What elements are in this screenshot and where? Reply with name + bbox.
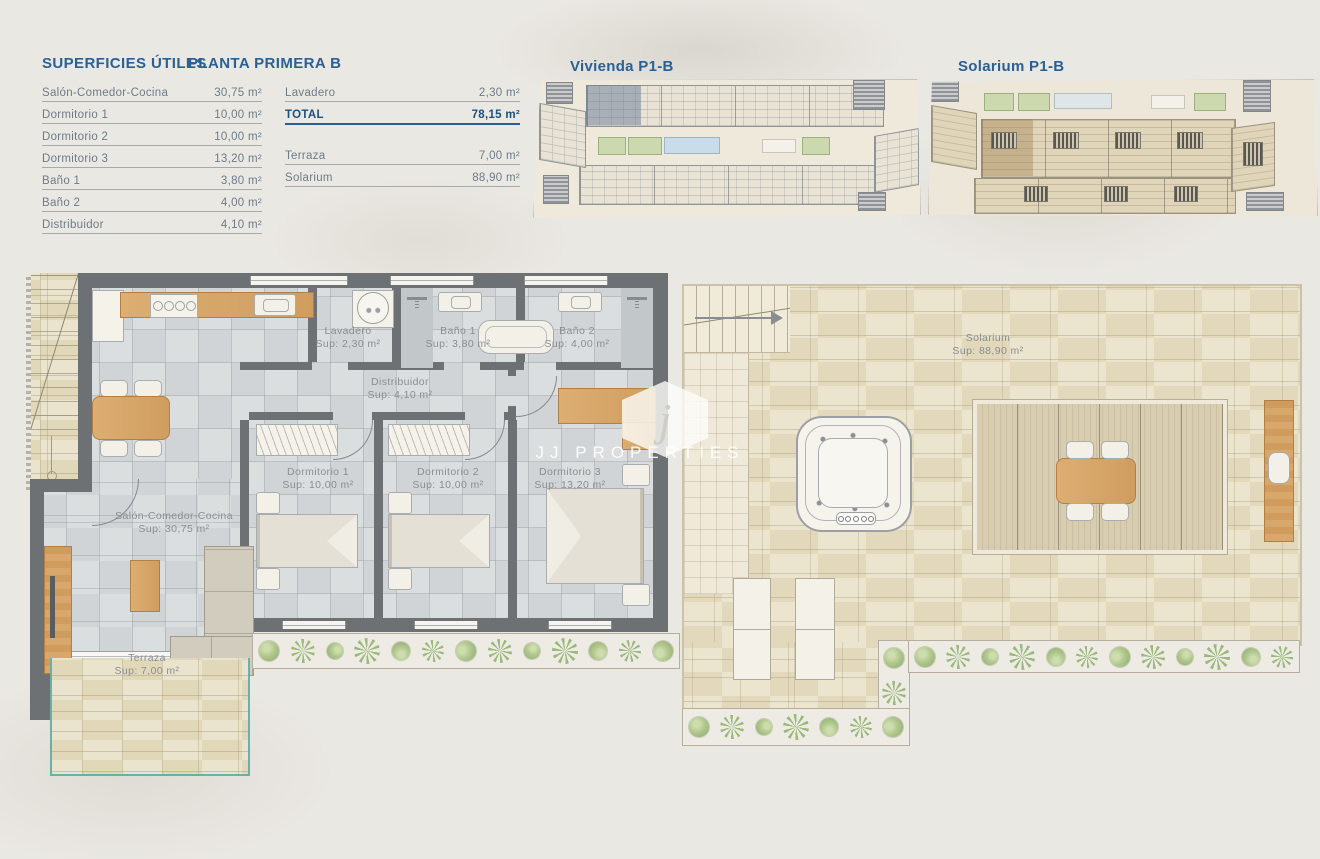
bed-fold: [327, 515, 357, 567]
bush-plant-icon: [1240, 646, 1261, 667]
partition-wall: [372, 412, 465, 420]
room-name: Dormitorio 3: [520, 466, 620, 479]
partition-wall: [480, 362, 516, 370]
room-name: Salón-Comedor-Cocina: [108, 510, 240, 523]
row-value: 78,15 m²: [472, 109, 520, 121]
partition-wall: [504, 412, 516, 420]
room-label-lavadero: LavaderoSup: 2,30 m²: [300, 325, 396, 351]
wardrobe: [388, 424, 470, 456]
room-label-dormitorio1: Dormitorio 1Sup: 10,00 m²: [268, 466, 368, 492]
room-label-solarium: SolariumSup: 88,90 m²: [928, 332, 1048, 358]
stair-pull-line: [51, 436, 52, 474]
surfaces-table-right: Lavadero2,30 m² TOTAL78,15 m² Terraza7,0…: [285, 80, 520, 187]
table-row: Solarium88,90 m²: [285, 165, 520, 187]
roof-vent: [1177, 132, 1203, 149]
vivienda-mini-title: Vivienda P1-B: [570, 58, 674, 75]
mini-terrace-patch: [1151, 95, 1185, 109]
bed-fold: [459, 515, 489, 567]
row-label: Distribuidor: [42, 219, 104, 231]
mini-stairs-hatch: [546, 82, 573, 104]
control-dot: [861, 516, 867, 522]
planter-strip: [682, 708, 910, 746]
chair: [1066, 441, 1094, 459]
room-area: Sup: 4,10 m²: [368, 389, 433, 401]
row-value: 30,75 m²: [214, 87, 262, 99]
mini-pool: [1054, 93, 1112, 109]
palm-plant-icon: [547, 634, 582, 669]
chair: [100, 380, 128, 397]
row-value: 7,00 m²: [479, 150, 520, 162]
roof-vent: [1024, 186, 1048, 202]
palm-plant-icon: [779, 710, 813, 744]
mini-garden: [598, 137, 626, 155]
single-bed: [256, 514, 358, 568]
table-row: Terraza7,00 m²: [285, 143, 520, 165]
row-value: 10,00 m²: [214, 109, 262, 121]
palm-plant-icon: [1267, 641, 1298, 672]
room-name: Terraza: [97, 652, 197, 665]
wall: [30, 479, 44, 662]
chair: [1101, 441, 1129, 459]
mini-stairs-hatch: [543, 175, 569, 204]
palm-plant-icon: [878, 676, 910, 710]
tv-unit: [44, 546, 72, 674]
washing-machine-icon: [357, 292, 389, 324]
sink-basin: [451, 296, 471, 309]
mini-stairs-hatch: [858, 192, 886, 211]
planter-strip: [908, 640, 1300, 673]
room-label-salon: Salón-Comedor-CocinaSup: 30,75 m²: [108, 510, 240, 536]
chair: [1066, 503, 1094, 521]
row-value: 10,00 m²: [214, 131, 262, 143]
palm-plant-icon: [715, 710, 749, 744]
burner-icon: [186, 301, 196, 311]
room-area: Sup: 10,00 m²: [282, 479, 353, 491]
row-label: Dormitorio 1: [42, 109, 108, 121]
partition-wall: [374, 420, 383, 618]
bush-plant-icon: [652, 640, 674, 662]
room-name: Distribuidor: [350, 376, 450, 389]
row-value: 88,90 m²: [472, 172, 520, 184]
chair: [100, 440, 128, 457]
mini-roofs-left-block: [931, 105, 977, 170]
roof-vent: [1053, 132, 1079, 149]
nightstand: [622, 584, 650, 606]
partition-wall: [249, 412, 333, 420]
nightstand: [388, 568, 412, 590]
plan-name-title: PLANTA PRIMERA B: [188, 55, 341, 72]
shower-spray-icon: [635, 300, 639, 308]
bush-plant-icon: [817, 715, 842, 740]
table-row: Baño 13,80 m²: [42, 168, 262, 190]
table-row: Distribuidor4,10 m²: [42, 212, 262, 234]
table-row: Baño 24,00 m²: [42, 190, 262, 212]
solarium-deck-extension: [682, 642, 884, 710]
stair-arrow-line: [695, 317, 771, 319]
row-label: Solarium: [285, 172, 333, 184]
nightstand: [622, 464, 650, 486]
row-value: 4,10 m²: [221, 219, 262, 231]
outdoor-table: [1056, 458, 1136, 504]
row-label: Baño 1: [42, 175, 80, 187]
table-row: Dormitorio 210,00 m²: [42, 124, 262, 146]
room-area: Sup: 2,30 m²: [316, 338, 381, 350]
outdoor-sink: [1268, 452, 1290, 484]
plan-sheet: SUPERFICIES ÚTILES PLANTA PRIMERA B Saló…: [0, 0, 1320, 859]
room-area: Sup: 4,00 m²: [545, 338, 610, 350]
planter-strip: [252, 633, 680, 669]
double-bed: [546, 488, 644, 584]
burner-icon: [164, 301, 174, 311]
palm-plant-icon: [486, 637, 514, 665]
roof-vent: [1174, 186, 1198, 202]
bedroom-window: [548, 621, 612, 629]
table-spacer: [285, 125, 520, 143]
bush-plant-icon: [452, 637, 480, 665]
room-name: Dormitorio 2: [398, 466, 498, 479]
sun-lounger: [795, 578, 835, 680]
room-name: Dormitorio 1: [268, 466, 368, 479]
sink-basin: [571, 296, 591, 309]
control-dot: [853, 516, 859, 522]
row-value: 2,30 m²: [479, 87, 520, 99]
room-area: Sup: 3,80 m²: [426, 338, 491, 350]
table-row: Salón-Comedor-Cocina30,75 m²: [42, 80, 262, 102]
roof-vent: [991, 132, 1017, 149]
palm-plant-icon: [941, 640, 975, 673]
mini-stairs-hatch: [929, 80, 959, 102]
shower-spray-icon: [415, 300, 419, 308]
mini-stairs-hatch: [853, 80, 885, 110]
watermark-brand: JJ PROPERTIES: [515, 443, 765, 463]
bush-plant-icon: [1043, 644, 1068, 669]
chair: [134, 440, 162, 457]
coffee-table: [130, 560, 160, 612]
room-area: Sup: 30,75 m²: [138, 523, 209, 535]
mini-units-bottom-row: [579, 165, 878, 205]
solarium-mini-title: Solarium P1-B: [958, 58, 1064, 75]
bedroom-window: [282, 621, 346, 629]
bush-plant-icon: [389, 639, 414, 664]
tv-screen: [50, 576, 55, 638]
room-label-distribuidor: DistribuidorSup: 4,10 m²: [350, 376, 450, 402]
bush-plant-icon: [325, 641, 345, 661]
kitchen-sink: [254, 294, 296, 316]
palm-plant-icon: [1075, 645, 1099, 669]
palm-plant-icon: [421, 639, 445, 663]
bush-plant-icon: [259, 641, 279, 661]
partition-wall: [240, 362, 312, 370]
mini-garden: [1194, 93, 1226, 111]
sink-basin: [263, 299, 289, 312]
mini-garden: [628, 137, 662, 155]
row-label: Lavadero: [285, 87, 335, 99]
stove: [150, 294, 198, 318]
table-row-total: TOTAL78,15 m²: [285, 102, 520, 125]
stair-arrow-icon: [771, 311, 783, 325]
room-label-dormitorio2: Dormitorio 2Sup: 10,00 m²: [398, 466, 498, 492]
mini-units-left-block: [539, 103, 586, 168]
palm-plant-icon: [615, 635, 646, 666]
bush-plant-icon: [1174, 646, 1195, 667]
bush-plant-icon: [588, 641, 609, 662]
room-area: Sup: 10,00 m²: [412, 479, 483, 491]
nightstand: [256, 568, 280, 590]
table-row: Dormitorio 110,00 m²: [42, 102, 262, 124]
window: [390, 276, 474, 285]
dining-table: [92, 396, 170, 440]
bush-plant-icon: [689, 717, 709, 737]
mini-pool: [664, 137, 720, 154]
palm-plant-icon: [849, 715, 873, 739]
watermark-initial: j: [659, 393, 672, 446]
room-area: Sup: 7,00 m²: [115, 665, 180, 677]
room-label-bano1: Baño 1Sup: 3,80 m²: [410, 325, 506, 351]
palm-plant-icon: [1005, 640, 1039, 673]
room-name: Lavadero: [300, 325, 396, 338]
bush-plant-icon: [879, 713, 907, 741]
chair: [134, 380, 162, 397]
mini-garden: [1018, 93, 1050, 111]
partition-wall: [508, 370, 516, 376]
room-area: Sup: 13,20 m²: [534, 479, 605, 491]
mini-units-right-block: [874, 128, 919, 193]
control-dot: [838, 516, 844, 522]
roof-vent: [1243, 142, 1263, 166]
surfaces-table-title: SUPERFICIES ÚTILES: [42, 55, 207, 72]
nightstand: [388, 492, 412, 514]
row-label: Baño 2: [42, 197, 80, 209]
sun-lounger: [733, 578, 771, 680]
solarium-mini-plan: [928, 79, 1318, 219]
bush-plant-icon: [915, 647, 935, 667]
palm-plant-icon: [1200, 640, 1235, 673]
row-label: Terraza: [285, 150, 325, 162]
window: [250, 276, 348, 285]
wall: [78, 273, 92, 479]
row-label: Dormitorio 3: [42, 153, 108, 165]
roof-vent: [1115, 132, 1141, 149]
row-value: 4,00 m²: [221, 197, 262, 209]
table-row: Dormitorio 313,20 m²: [42, 146, 262, 168]
palm-plant-icon: [1139, 642, 1167, 670]
room-label-terraza: TerrazaSup: 7,00 m²: [97, 652, 197, 678]
bush-plant-icon: [1106, 642, 1134, 670]
window: [524, 276, 608, 285]
mini-terrace-patch: [762, 139, 796, 153]
row-label: Salón-Comedor-Cocina: [42, 87, 168, 99]
wardrobe: [256, 424, 338, 456]
table-row: Lavadero2,30 m²: [285, 80, 520, 102]
row-value: 3,80 m²: [221, 175, 262, 187]
control-dot: [868, 516, 874, 522]
mini-garden: [984, 93, 1014, 111]
row-value: 13,20 m²: [214, 153, 262, 165]
surfaces-table-left: Salón-Comedor-Cocina30,75 m² Dormitorio …: [42, 80, 262, 234]
partition-wall: [516, 362, 524, 370]
row-label: Dormitorio 2: [42, 131, 108, 143]
highlighted-unit: [586, 85, 641, 125]
room-label-bano2: Baño 2Sup: 4,00 m²: [530, 325, 624, 351]
mini-stairs-hatch: [1246, 192, 1284, 211]
burner-icon: [153, 301, 163, 311]
planter-connector: [878, 640, 910, 712]
bed-fold: [547, 489, 581, 583]
room-name: Solarium: [928, 332, 1048, 345]
single-bed: [388, 514, 490, 568]
room-label-dormitorio3: Dormitorio 3Sup: 13,20 m²: [520, 466, 620, 492]
bedroom-window: [414, 621, 478, 629]
mini-garden: [802, 137, 830, 155]
burner-icon: [175, 301, 185, 311]
roof-vent: [1104, 186, 1128, 202]
room-name: Baño 1: [410, 325, 506, 338]
exterior-staircase: [31, 273, 78, 491]
bathroom-vanity: [438, 292, 482, 312]
room-name: Baño 2: [530, 325, 624, 338]
bush-plant-icon: [754, 717, 774, 737]
jacuzzi-control-panel: [836, 512, 876, 525]
bathroom-vanity: [558, 292, 602, 312]
vivienda-mini-plan: [533, 79, 921, 219]
bush-plant-icon: [980, 647, 1000, 667]
palm-plant-icon: [351, 634, 385, 668]
bush-plant-icon: [521, 640, 542, 661]
room-area: Sup: 88,90 m²: [952, 345, 1023, 357]
row-label: TOTAL: [285, 109, 324, 121]
bush-plant-icon: [884, 648, 904, 668]
mini-stairs-hatch: [1243, 80, 1271, 112]
chair: [1101, 503, 1129, 521]
nightstand: [256, 492, 280, 514]
palm-plant-icon: [286, 634, 320, 668]
control-dot: [845, 516, 851, 522]
jacuzzi-basin: [818, 438, 888, 508]
